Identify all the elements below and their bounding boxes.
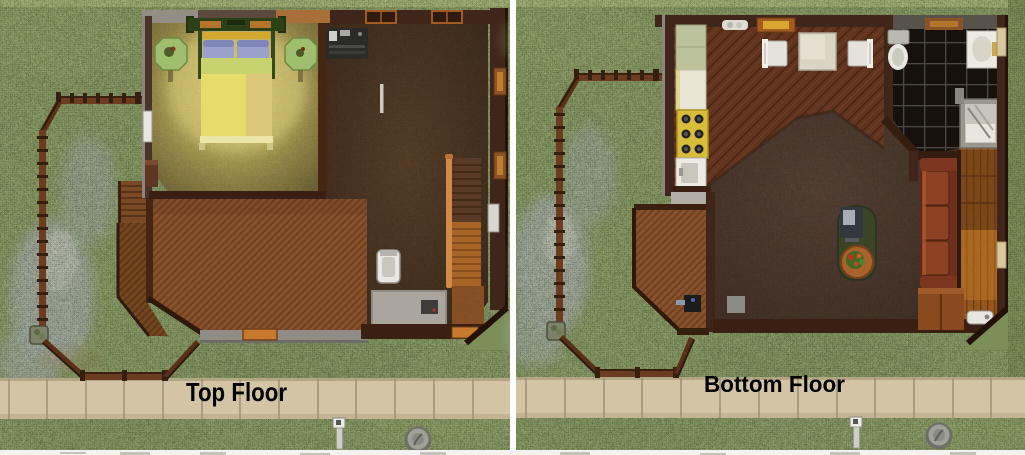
svg-text:Top Floor: Top Floor (186, 377, 287, 407)
svg-text:Bottom Floor: Bottom Floor (704, 371, 845, 397)
